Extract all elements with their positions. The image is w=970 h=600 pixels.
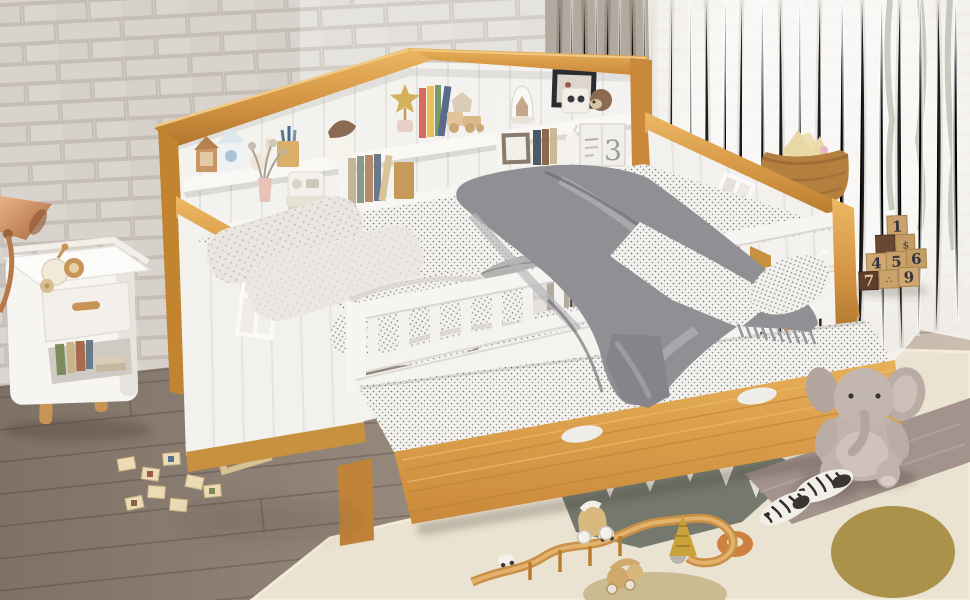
wood-bookend: [394, 162, 414, 199]
robot-toy: [562, 88, 589, 113]
books-lower-right: [533, 128, 557, 165]
vase: [258, 178, 272, 202]
hedgehog-plush: [590, 89, 612, 111]
bedroom-photo: 1 $ 4 5 6 7 ∴ 9: [0, 0, 970, 600]
shelf-divider: [497, 95, 506, 136]
block-9: 9: [903, 268, 914, 286]
books-lower-left: [348, 154, 393, 204]
storage-box-label: 3: [604, 134, 622, 167]
storage-box: 3: [580, 124, 625, 167]
block-sym1: $: [902, 240, 909, 251]
block-1: 1: [892, 218, 903, 236]
block-7: 7: [864, 272, 875, 290]
block-6: 6: [911, 250, 922, 268]
block-sym2: ∴: [886, 275, 893, 286]
scene-canvas: 1 $ 4 5 6 7 ∴ 9: [0, 0, 970, 600]
front-right-post: [832, 198, 858, 336]
bed-shadow: [180, 504, 360, 536]
block-4: 4: [871, 254, 882, 272]
picture-frame-small: [501, 133, 530, 165]
front-left-leg: [338, 458, 374, 546]
block-5: 5: [891, 253, 902, 271]
